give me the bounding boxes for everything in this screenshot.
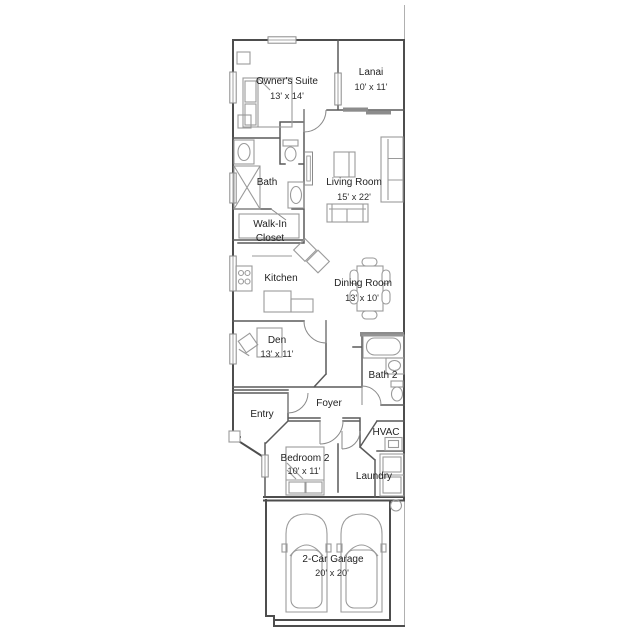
foyer-label: Foyer [316, 398, 342, 409]
owners-suite-door-arc [304, 110, 326, 132]
garage-dims: 20' x 20' [315, 568, 349, 578]
bath-label: Bath [257, 177, 278, 188]
bath2-door-arc [362, 386, 381, 405]
kitchen-island-icon [264, 291, 313, 312]
window-icon [230, 256, 236, 291]
vanity-sink-icon [288, 182, 304, 208]
den-dims: 13' x 11' [261, 349, 294, 359]
chair-icon [362, 258, 377, 266]
toilet-icon [283, 140, 298, 161]
hvac-unit-icon [385, 438, 402, 451]
armchair-icon [334, 152, 355, 177]
window-icon [262, 455, 268, 477]
den-label: Den [268, 335, 286, 346]
stove-icon [236, 266, 252, 291]
floor-plan-drawing: Owner's Suite 13' x 14' Lanai 10' x 11' … [0, 0, 639, 639]
desk-chair-icon [238, 333, 257, 356]
bedroom2-label: Bedroom 2 [281, 453, 330, 464]
sofa-icon [381, 137, 403, 202]
bathtub-icon [363, 335, 404, 358]
owners-suite-label: Owner's Suite [256, 76, 318, 87]
bath2-label: Bath 2 [369, 370, 398, 381]
bath2-top-wall [360, 332, 404, 337]
living-room-dims: 15' x 22' [337, 192, 371, 202]
window-icon [230, 72, 236, 103]
dining-room-label: Dining Room [334, 278, 392, 289]
corner-counter-sink-icon [294, 239, 330, 273]
window-icon [230, 334, 236, 364]
window-icon [230, 173, 236, 203]
living-room-niche [305, 152, 313, 185]
bedroom2-door-arc [320, 421, 343, 444]
entry-label: Entry [250, 409, 273, 420]
laundry-label: Laundry [356, 471, 392, 482]
lanai-slider [343, 108, 391, 115]
front-door-arc [288, 393, 308, 413]
dining-room-dims: 13' x 10' [345, 293, 379, 303]
chair-icon [382, 290, 390, 304]
nightstand-icon [237, 52, 250, 64]
entry-post [229, 431, 240, 442]
walk-in-closet-label-line2: Closet [256, 233, 285, 244]
garage-label: 2-Car Garage [302, 554, 364, 565]
toilet-icon [391, 381, 403, 401]
chair-icon [362, 311, 377, 319]
hall-closet-door-arc [342, 431, 360, 449]
bath2-fixtures [363, 335, 404, 401]
window-icon [268, 37, 296, 43]
living-room-label: Living Room [326, 177, 382, 188]
hvac-label: HVAC [372, 427, 399, 438]
vanity-sink-icon [234, 140, 254, 164]
owners-suite-dims: 13' x 14' [270, 91, 304, 101]
bedroom2-dims: 10' x 11' [288, 466, 321, 476]
window-icon [335, 73, 341, 105]
lanai-dims: 10' x 11' [355, 82, 388, 92]
water-heater-icon [391, 500, 402, 511]
walk-in-closet-label-line1: Walk-In [253, 219, 287, 230]
owners-suite-furniture [237, 52, 292, 128]
den-door-arc [304, 321, 326, 343]
floor-plan-page: Owner's Suite 13' x 14' Lanai 10' x 11' … [0, 0, 639, 639]
kitchen-label: Kitchen [264, 273, 297, 284]
lanai-label: Lanai [359, 67, 383, 78]
slider-panel-1 [343, 108, 368, 112]
loveseat-icon [327, 204, 368, 222]
slider-panel-2 [366, 110, 391, 114]
